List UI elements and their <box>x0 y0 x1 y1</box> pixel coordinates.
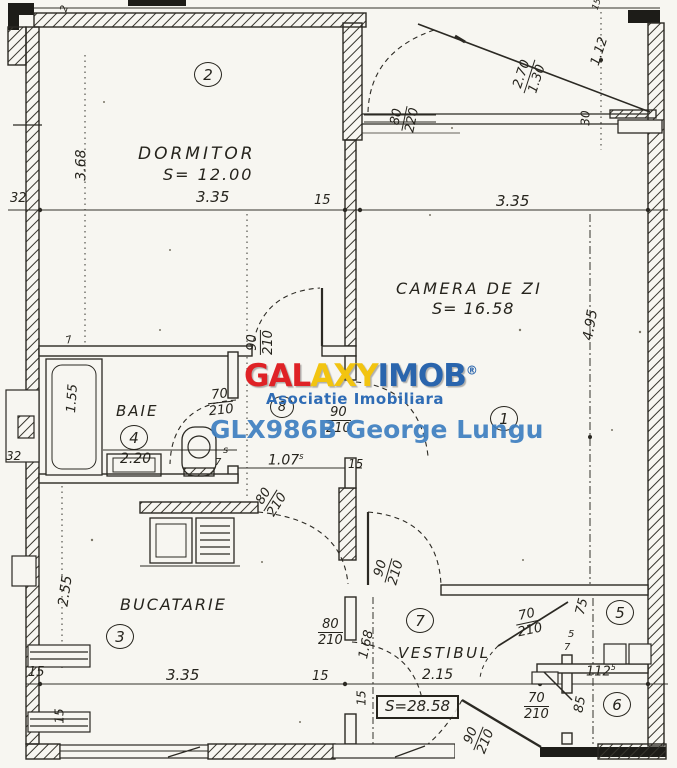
dim-kitchen-width: 3.35 <box>166 668 199 683</box>
dim-win15: 15 <box>54 708 66 723</box>
room-number-bedroom: 2 <box>194 62 222 87</box>
registered-mark-icon: ® <box>466 364 477 378</box>
tick-7a: 7 <box>215 458 221 468</box>
dim-wall32-top: 32 <box>10 192 27 205</box>
dim-closet5-width: 75 <box>574 597 591 616</box>
door-dim-vest-kitchen: 80 210 <box>318 618 343 647</box>
dim-bedroom-height: 3.68 <box>75 149 89 180</box>
door-dim-num: 90 <box>246 330 261 355</box>
room-number-closet5: 5 <box>606 600 634 625</box>
balcony-door-arc <box>368 30 434 112</box>
watermark-logo-part3: IMOB <box>378 358 466 394</box>
watermark-logo-part1: GAL <box>244 358 310 394</box>
dim-gap15-b: 15 <box>348 458 363 470</box>
door-dim-den: 210 <box>524 707 549 721</box>
dim-hall-width-value: 1.07 <box>268 453 299 469</box>
dim-bath-width: 2.20 <box>120 452 151 466</box>
total-area: S=28.58 <box>376 695 459 719</box>
room-name-kitchen: BUCATARIE <box>120 597 227 613</box>
room-number-hallway: 7 <box>406 608 434 633</box>
floorplan-page: 2 DORMITOR S= 12.00 CAMERA DE ZI S= 16.5… <box>0 0 677 768</box>
room-number-closet6: 6 <box>603 692 631 717</box>
door-dim-den: 210 <box>261 330 275 355</box>
watermark-logo-part2: AXY <box>310 358 377 394</box>
room-number-kitchen: 3 <box>106 624 134 649</box>
door-dim-den: 210 <box>318 633 343 647</box>
dim-niche-value: 112 <box>586 664 611 679</box>
dim-niche-sup: 5 <box>611 663 616 672</box>
watermark-agent-id: GLX986B George Lungu <box>210 415 543 444</box>
room-number-bath: 4 <box>120 425 148 450</box>
door-dim-num: 80 <box>318 618 343 633</box>
door-dim-closet6: 70 210 <box>524 692 549 721</box>
room-name-bath: BAIE <box>116 404 158 419</box>
door-dim-bedroom: 90 210 <box>246 330 275 355</box>
room-name-bedroom: DORMITOR <box>138 146 256 163</box>
dim-k15b: 15 <box>312 670 329 683</box>
door-dim-bath: 70 210 <box>207 387 235 418</box>
room-area-living: S= 16.58 <box>432 301 514 317</box>
dim-hall-width: 1.07s <box>268 452 304 468</box>
dim-bedroom-width: 3.35 <box>196 190 229 205</box>
dim-closet6-width: 85 <box>572 695 588 714</box>
tick-7b: 7 <box>564 643 570 653</box>
dim-wall32-mid: 32 <box>6 450 21 462</box>
tick-s1: s <box>223 446 228 456</box>
kitchen-door-arc <box>258 512 348 584</box>
dim-gap15-a: 15 <box>314 194 331 207</box>
dim-k15a: 15 <box>28 666 45 679</box>
dim-niche-width: 1125 <box>586 664 616 678</box>
door-dim-num: 70 <box>524 692 549 707</box>
room-area-bedroom: S= 12.00 <box>163 167 253 183</box>
dim-bath-length: 1.55 <box>65 384 80 414</box>
dim-radiator30: 30 <box>580 110 592 125</box>
dim-vest15: 15 <box>356 690 368 705</box>
watermark-subtitle: Asociatie Imobiliara <box>266 390 444 408</box>
bathtub <box>46 359 102 475</box>
dim-hall-width-sup: s <box>299 451 303 461</box>
dim-vest-width: 2.15 <box>422 668 453 682</box>
room-name-living: CAMERA DE ZI <box>396 281 542 297</box>
dim-kitchen-height: 2.55 <box>56 575 74 608</box>
watermark-logo: GALAXYIMOB® <box>244 358 477 394</box>
dim-living-width: 3.35 <box>496 194 529 209</box>
tick-5a: 5 <box>568 630 574 640</box>
room-name-hallway: VESTIBUL <box>398 646 490 661</box>
